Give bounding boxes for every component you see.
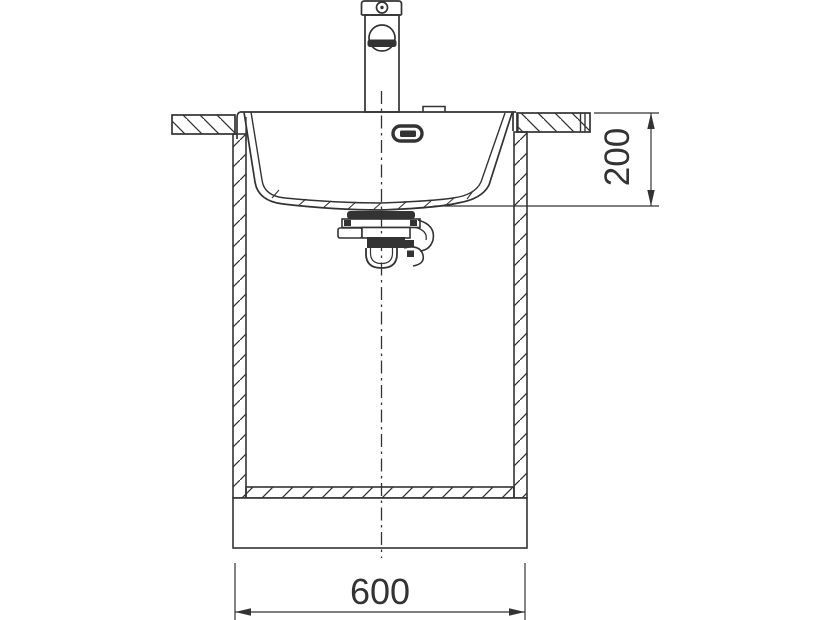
dimension-label-600: 600 (350, 571, 410, 612)
waste-drain-trap (338, 211, 433, 268)
faucet-handle (369, 25, 395, 51)
bowl-outer-wall (244, 112, 512, 210)
worktop-right (517, 113, 590, 132)
dimension-label-200: 200 (598, 128, 637, 186)
arrowhead-right (509, 608, 525, 615)
cabinet-side-right (514, 132, 527, 498)
cabinet-side-left (233, 134, 246, 498)
arrowhead-down (647, 190, 654, 206)
cabinet-bottom-panel (246, 487, 514, 498)
arrowhead-up (647, 113, 654, 129)
drawing-canvas: 200 600 (0, 0, 826, 620)
overflow-slot (393, 126, 422, 141)
sink-bowl (237, 107, 518, 211)
bowl-inner-wall (251, 112, 505, 203)
cabinet (233, 132, 527, 548)
worktop-left (172, 115, 235, 134)
dimension-cabinet-width: 600 (235, 563, 525, 620)
cabinet-plinth (233, 498, 527, 548)
technical-drawing: 200 600 (0, 0, 826, 620)
arrowhead-left (235, 608, 251, 615)
